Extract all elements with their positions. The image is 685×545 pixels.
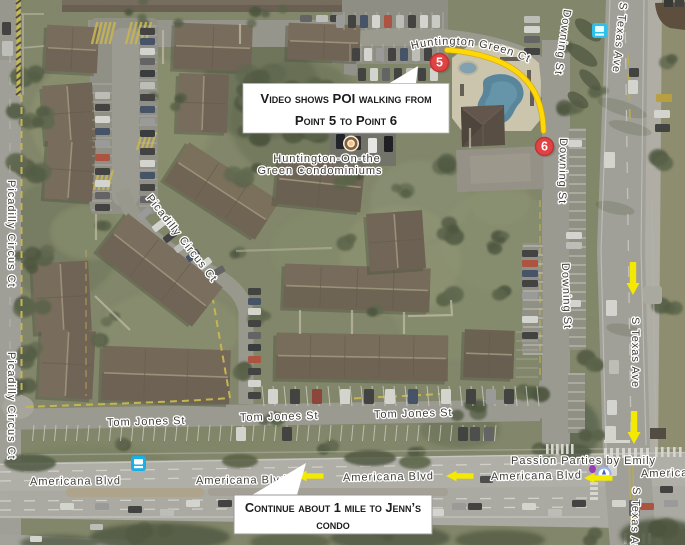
svg-text:Point 5 to Point 6: Point 5 to Point 6 bbox=[295, 113, 397, 128]
svg-text:Tom Jones St: Tom Jones St bbox=[107, 415, 186, 429]
svg-text:Americana Blvd: Americana Blvd bbox=[641, 466, 685, 480]
svg-text:Picadilly Circus Ct: Picadilly Circus Ct bbox=[5, 352, 17, 460]
svg-text:Downing St: Downing St bbox=[559, 263, 573, 330]
svg-text:6: 6 bbox=[541, 140, 548, 154]
svg-text:Huntington-On-the: Huntington-On-the bbox=[273, 153, 381, 165]
svg-text:Video shows POI walking from: Video shows POI walking from bbox=[260, 91, 431, 106]
svg-text:5: 5 bbox=[436, 56, 443, 70]
svg-text:Americana Blvd: Americana Blvd bbox=[30, 475, 121, 488]
svg-text:Picadilly Circus Ct: Picadilly Circus Ct bbox=[5, 180, 17, 288]
svg-text:Downing St: Downing St bbox=[556, 138, 569, 204]
svg-text:Continue about 1 mile to Jenn’: Continue about 1 mile to Jenn’s bbox=[245, 500, 421, 515]
svg-text:Americana Blvd: Americana Blvd bbox=[343, 470, 434, 484]
svg-text:condo: condo bbox=[316, 517, 350, 532]
svg-text:S Texas Ave: S Texas Ave bbox=[629, 317, 641, 388]
svg-text:Tom Jones St: Tom Jones St bbox=[374, 407, 453, 421]
svg-text:Passion Parties by Emily: Passion Parties by Emily bbox=[511, 455, 656, 467]
svg-text:Green Condominiums: Green Condominiums bbox=[258, 165, 383, 177]
svg-text:Tom Jones St: Tom Jones St bbox=[240, 410, 319, 424]
svg-text:Americana Blvd: Americana Blvd bbox=[491, 469, 582, 483]
